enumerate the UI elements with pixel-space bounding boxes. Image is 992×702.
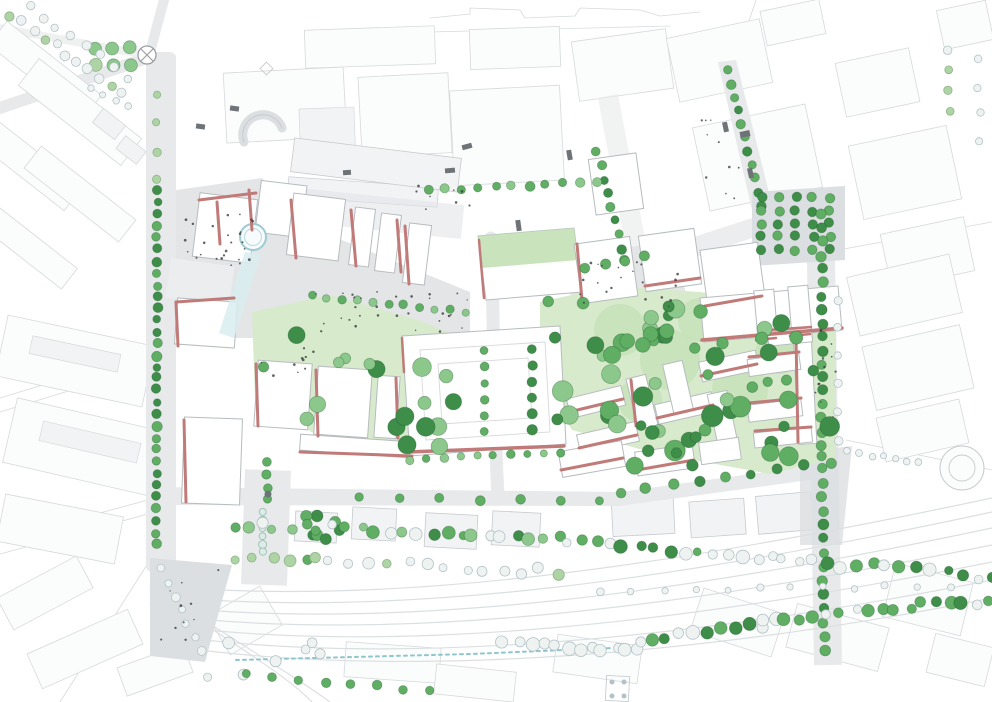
round-building [940, 446, 984, 490]
bus-stop [445, 168, 455, 174]
bus-stop [566, 150, 573, 161]
masterplan-canvas [0, 0, 992, 702]
site-plan-drawing [0, 0, 992, 702]
bus-stop [343, 170, 351, 176]
bus-stop [515, 220, 521, 232]
station-marker [265, 491, 272, 498]
bus-stop [196, 123, 206, 129]
